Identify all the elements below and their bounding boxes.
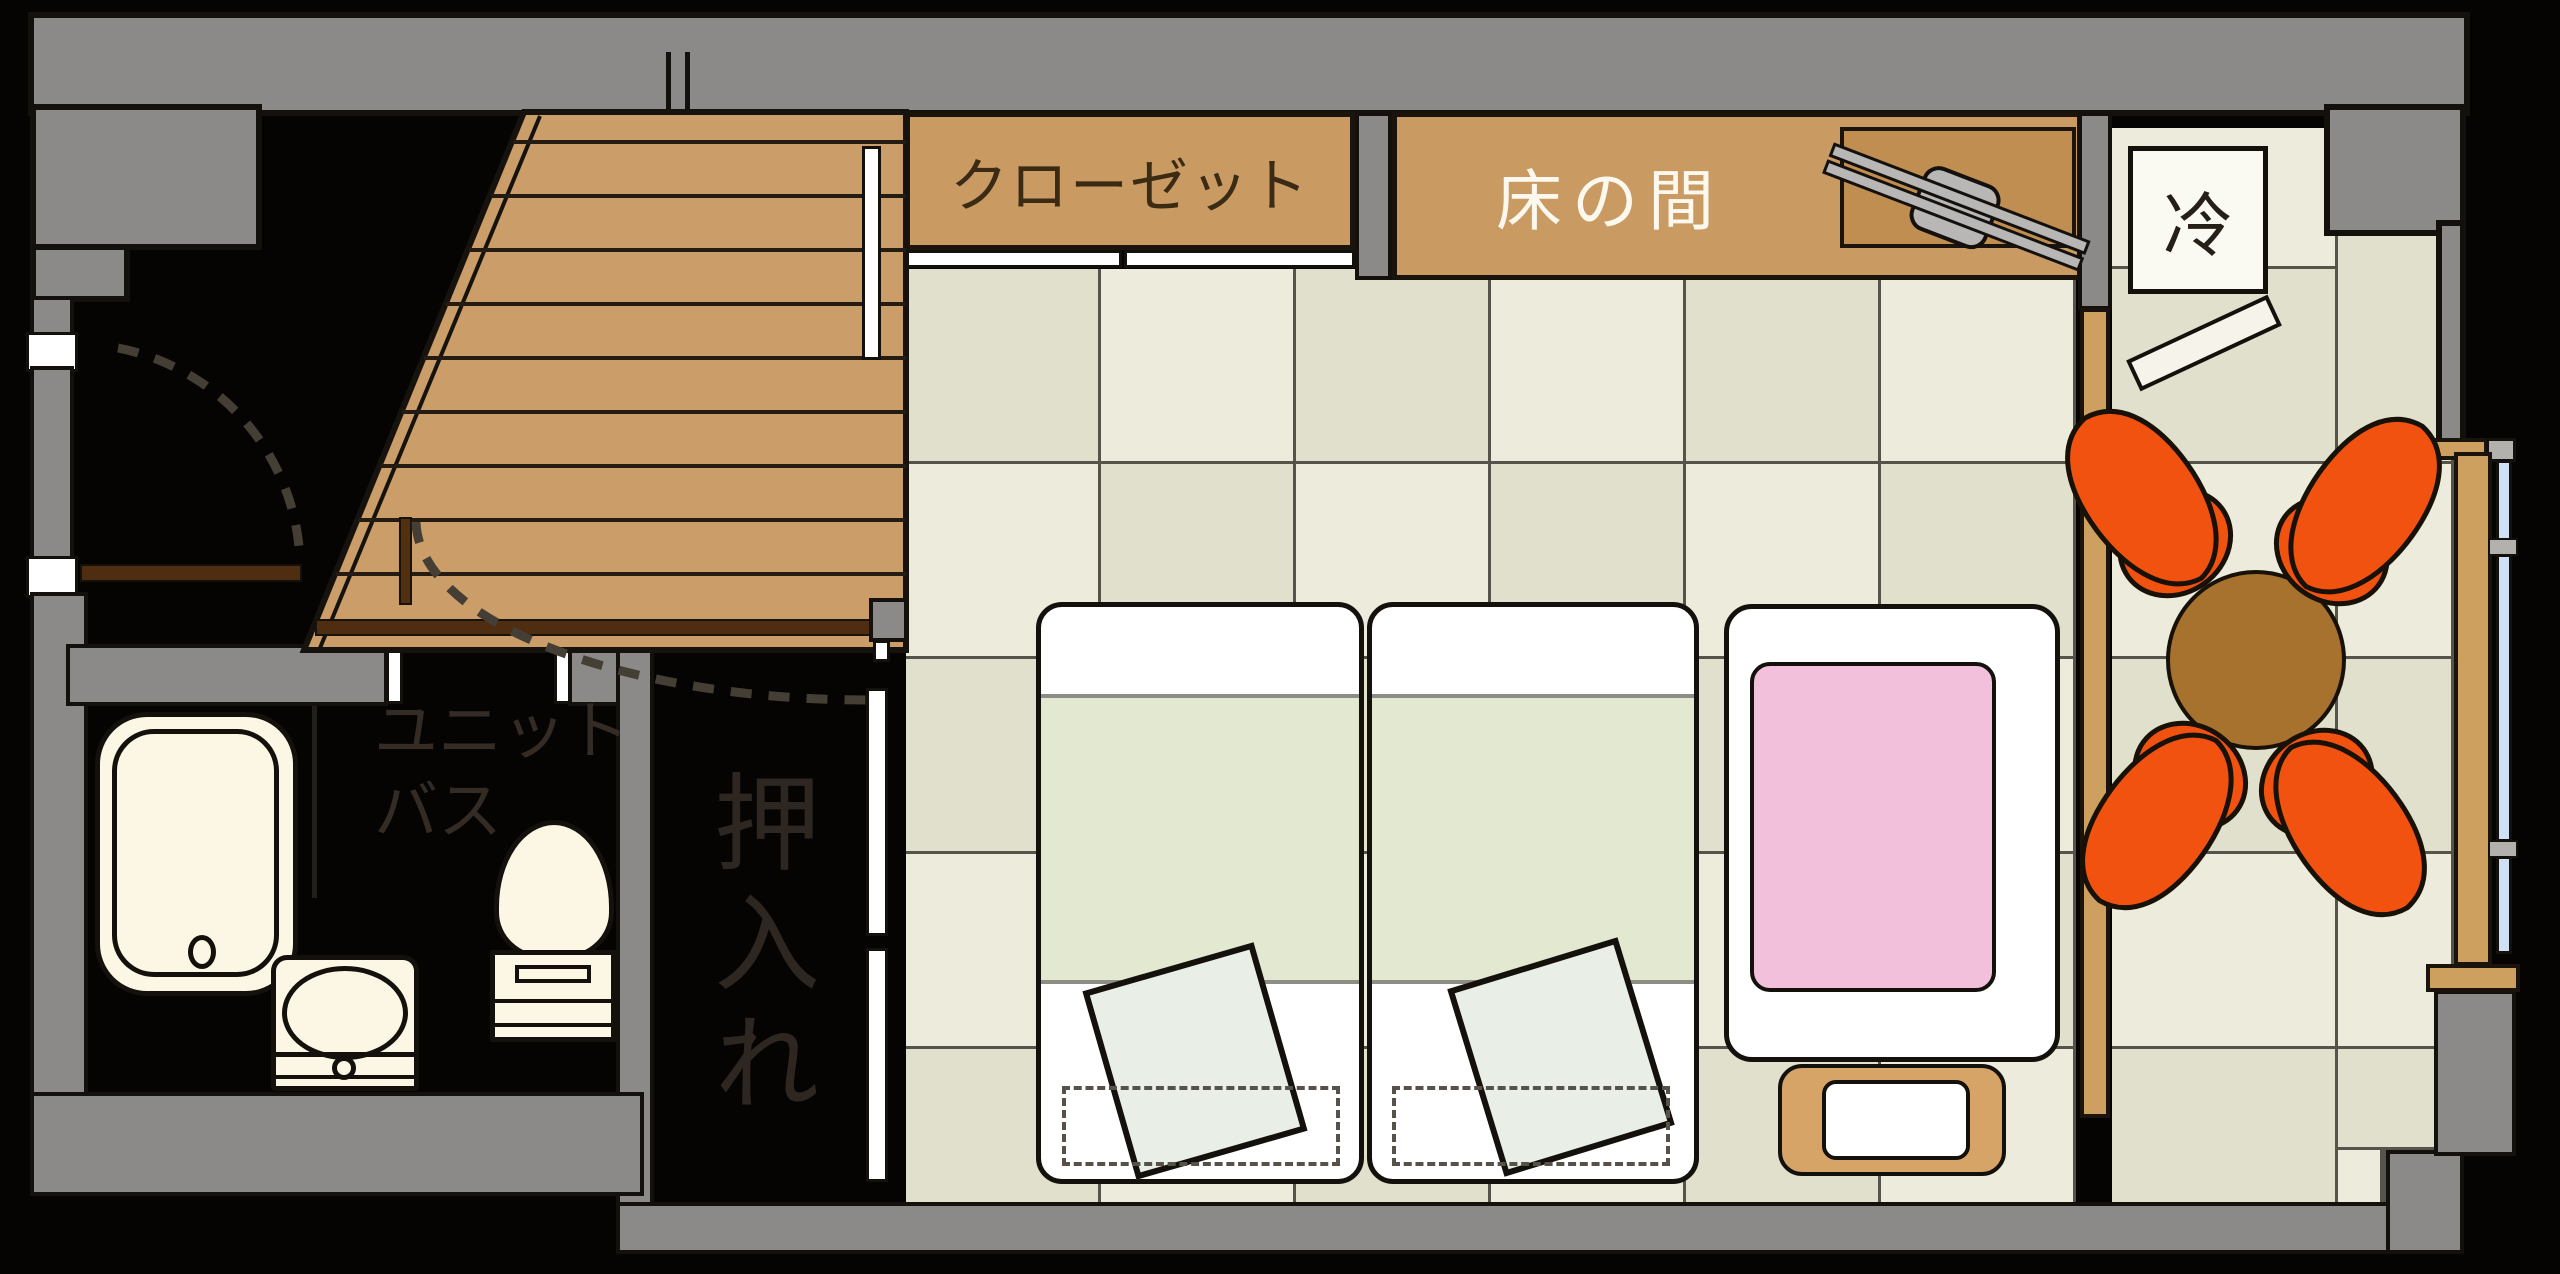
oshiire-fusuma-lower: [866, 948, 888, 1182]
unit-bath-label-line2: バス: [374, 772, 630, 852]
bed-right-blanket: [1372, 694, 1694, 984]
bed-left-blanket: [1041, 694, 1359, 984]
bed-left-footprint: [1062, 1086, 1340, 1166]
stair-bottom-edge: [316, 620, 906, 635]
sink-unit: [271, 955, 419, 1091]
floor-seat-cushion: [1822, 1080, 1970, 1160]
oshiire-fusuma-upper: [866, 688, 888, 936]
sink-basin: [282, 966, 408, 1060]
oshiire-label: 押入れ: [704, 768, 810, 1128]
refrigerator-box: 冷: [2128, 146, 2268, 294]
floor-plan: 冷 クローゼット 床の間 押入れ ユニット バス: [0, 0, 2560, 1274]
television-icon: [1818, 129, 2095, 286]
unit-bath-label: ユニット バス: [374, 692, 630, 852]
stair-handrail-post: [400, 518, 411, 604]
bed-right-footprint: [1392, 1086, 1670, 1166]
closet-label: クローゼット: [905, 112, 1355, 250]
unit-bath-label-line1: ユニット: [374, 692, 630, 772]
kotatsu-top-pink: [1750, 662, 1996, 992]
wall-corner-block: [869, 598, 908, 642]
sink-bottom-line: [276, 1075, 414, 1079]
toilet-tank-line-1: [495, 999, 611, 1003]
stair-fusuma-door: [862, 146, 881, 360]
entry-door-swing-arc: [118, 348, 300, 562]
refrigerator-label: 冷: [2163, 170, 2233, 271]
oshiire-label-text: 押入れ: [696, 768, 819, 1128]
tokonoma-label: 床の間: [1400, 112, 1820, 280]
toilet: [490, 820, 620, 1042]
bath-partition-line: [312, 706, 317, 898]
bathtub-drain: [188, 935, 216, 969]
entry-threshold: [80, 564, 302, 582]
staircase: [304, 112, 906, 650]
toilet-tank: [490, 950, 616, 1042]
door-jamb-corner: [873, 640, 890, 662]
bathtub: [95, 712, 298, 996]
tokonoma-label-text: 床の間: [1496, 148, 1724, 244]
closet-label-text: クローゼット: [950, 139, 1310, 223]
toilet-tank-slot: [515, 965, 591, 983]
toilet-tank-line-2: [495, 1023, 611, 1027]
